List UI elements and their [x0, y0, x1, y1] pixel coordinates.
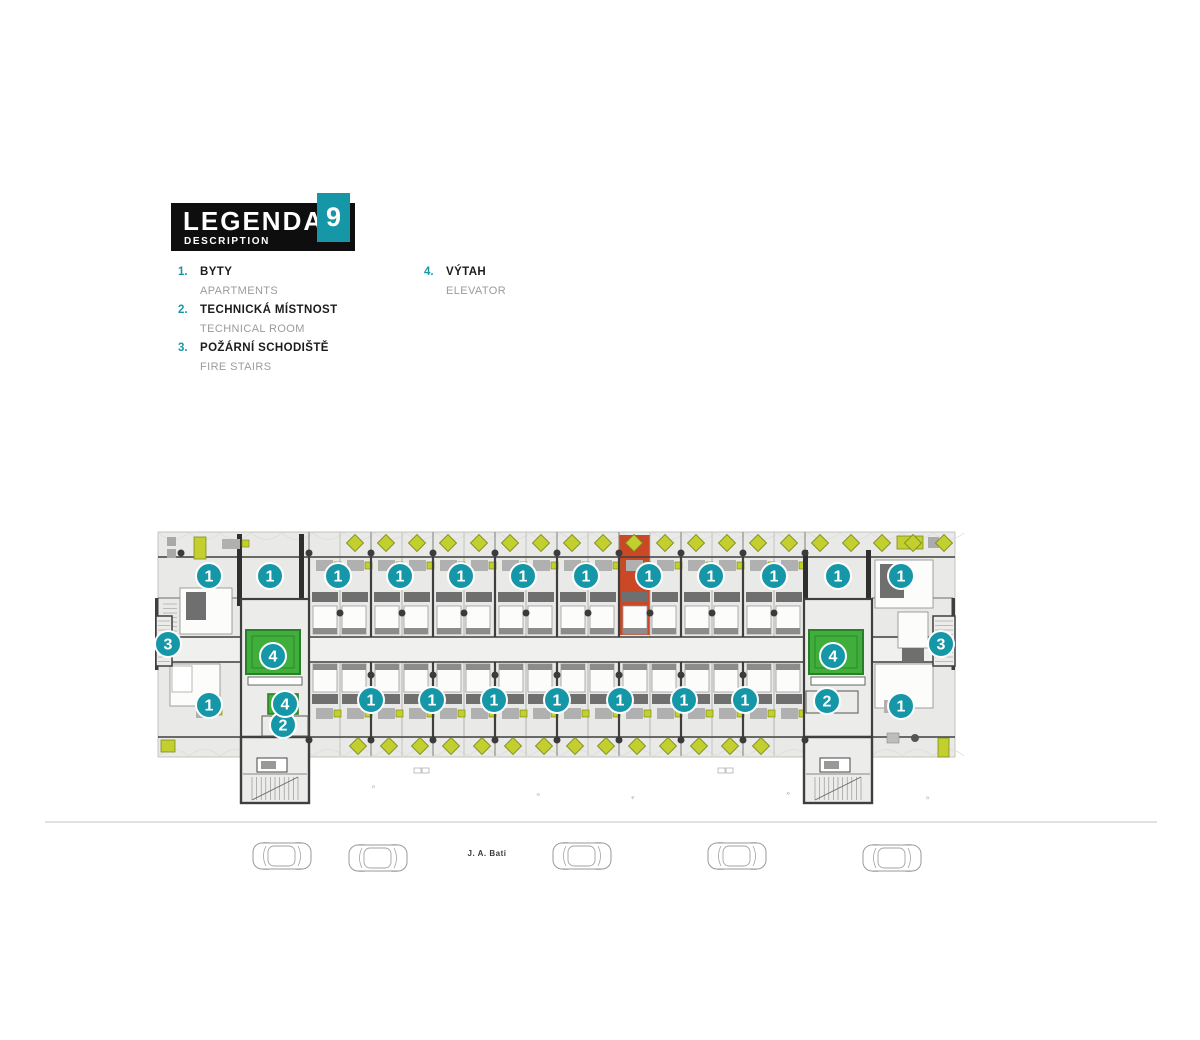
- marker-1[interactable]: 1: [888, 563, 914, 589]
- svg-text:4: 4: [281, 697, 290, 714]
- svg-text:1: 1: [616, 693, 625, 710]
- marker-1[interactable]: 1: [573, 563, 599, 589]
- svg-text:1: 1: [582, 569, 591, 586]
- parked-car: [253, 842, 311, 870]
- svg-text:2: 2: [823, 694, 832, 711]
- marker-4[interactable]: 4: [260, 643, 286, 669]
- marker-1[interactable]: 1: [481, 687, 507, 713]
- marker-3[interactable]: 3: [928, 631, 954, 657]
- marker-1[interactable]: 1: [888, 693, 914, 719]
- floor-plan: »»»»»J. A. Bati1111111111111111111112233…: [0, 0, 1200, 1040]
- svg-text:1: 1: [897, 569, 906, 586]
- street: J. A. Bati: [45, 822, 1157, 872]
- marker-3[interactable]: 3: [155, 631, 181, 657]
- svg-text:»: »: [536, 791, 541, 799]
- svg-text:4: 4: [269, 649, 278, 666]
- svg-text:1: 1: [490, 693, 499, 710]
- marker-4[interactable]: 4: [272, 691, 298, 717]
- marker-1[interactable]: 1: [387, 563, 413, 589]
- svg-text:2: 2: [279, 718, 288, 735]
- marker-1[interactable]: 1: [510, 563, 536, 589]
- marker-1[interactable]: 1: [419, 687, 445, 713]
- marker-1[interactable]: 1: [698, 563, 724, 589]
- svg-text:1: 1: [396, 569, 405, 586]
- svg-text:»: »: [630, 794, 637, 802]
- svg-text:4: 4: [829, 649, 838, 666]
- svg-text:1: 1: [741, 693, 750, 710]
- marker-1[interactable]: 1: [196, 563, 222, 589]
- marker-1[interactable]: 1: [358, 687, 384, 713]
- svg-text:1: 1: [834, 569, 843, 586]
- svg-text:1: 1: [205, 698, 214, 715]
- svg-text:1: 1: [428, 693, 437, 710]
- marker-1[interactable]: 1: [196, 692, 222, 718]
- parked-car: [553, 842, 611, 870]
- parked-car: [863, 844, 921, 872]
- page: LEGENDA DESCRIPTION 9 1. BYTY APARTMENTS…: [0, 0, 1200, 1040]
- marker-2[interactable]: 2: [814, 688, 840, 714]
- svg-text:1: 1: [367, 693, 376, 710]
- marker-1[interactable]: 1: [448, 563, 474, 589]
- svg-text:1: 1: [334, 569, 343, 586]
- svg-text:1: 1: [680, 693, 689, 710]
- street-name-label: J. A. Bati: [468, 849, 507, 858]
- svg-text:1: 1: [519, 569, 528, 586]
- svg-text:3: 3: [164, 637, 173, 654]
- svg-text:1: 1: [266, 569, 275, 586]
- marker-1[interactable]: 1: [607, 687, 633, 713]
- marker-1[interactable]: 1: [257, 563, 283, 589]
- svg-text:1: 1: [770, 569, 779, 586]
- svg-text:3: 3: [937, 637, 946, 654]
- marker-4[interactable]: 4: [820, 643, 846, 669]
- svg-text:1: 1: [553, 693, 562, 710]
- svg-text:1: 1: [707, 569, 716, 586]
- svg-text:1: 1: [457, 569, 466, 586]
- marker-1[interactable]: 1: [544, 687, 570, 713]
- marker-1[interactable]: 1: [636, 563, 662, 589]
- marker-1[interactable]: 1: [325, 563, 351, 589]
- svg-text:»: »: [371, 783, 377, 791]
- svg-text:1: 1: [645, 569, 654, 586]
- marker-1[interactable]: 1: [732, 687, 758, 713]
- marker-1[interactable]: 1: [671, 687, 697, 713]
- svg-text:1: 1: [897, 699, 906, 716]
- svg-text:»: »: [925, 794, 930, 802]
- marker-1[interactable]: 1: [761, 563, 787, 589]
- marker-1[interactable]: 1: [825, 563, 851, 589]
- svg-text:1: 1: [205, 569, 214, 586]
- parked-car: [708, 842, 766, 870]
- svg-text:»: »: [786, 790, 791, 797]
- parked-car: [349, 844, 407, 872]
